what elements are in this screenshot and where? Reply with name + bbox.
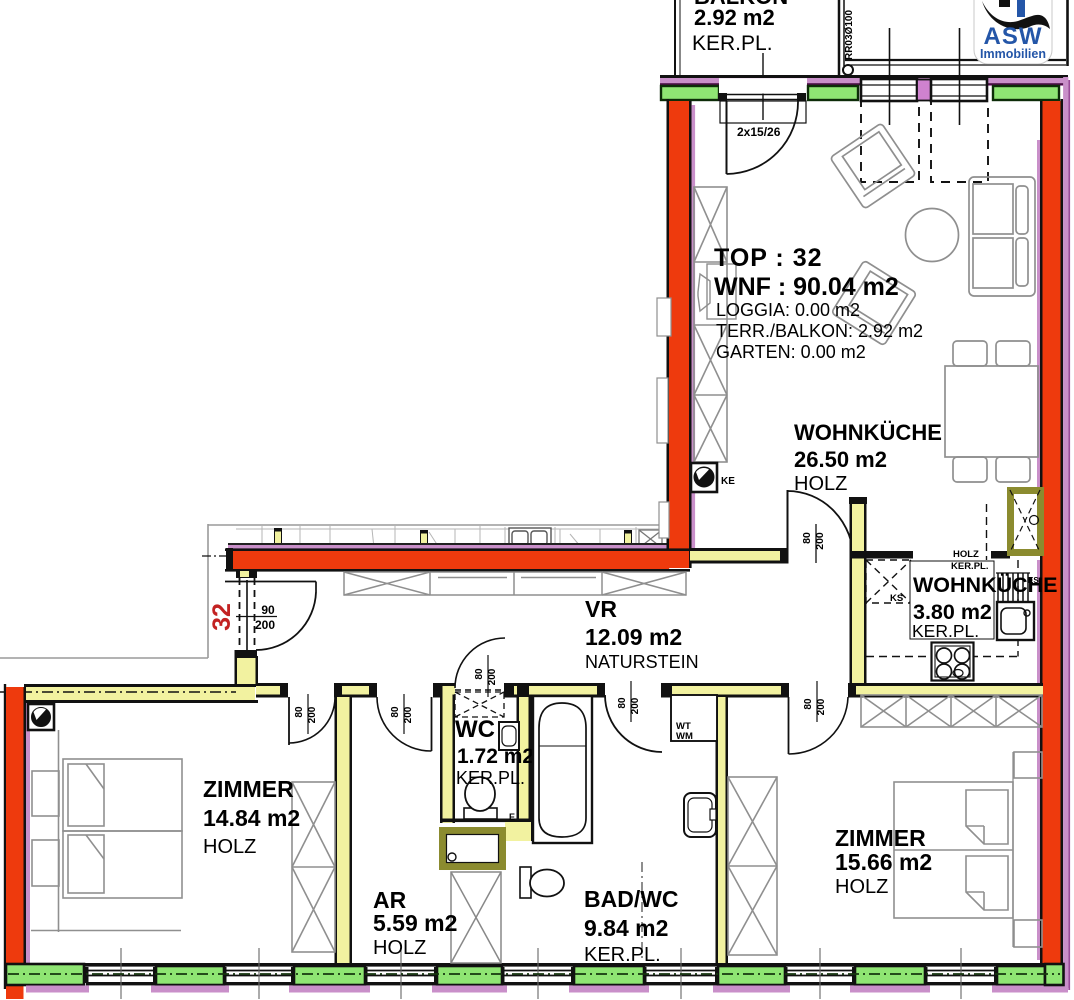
svg-text:15.66 m2: 15.66 m2 bbox=[835, 849, 932, 875]
svg-text:Immobilien: Immobilien bbox=[980, 47, 1046, 61]
svg-text:ES: ES bbox=[1028, 576, 1039, 585]
svg-text:BAD/WC: BAD/WC bbox=[584, 886, 679, 912]
svg-text:80: 80 bbox=[803, 698, 814, 710]
svg-text:WM: WM bbox=[676, 731, 693, 742]
svg-text:200: 200 bbox=[403, 706, 414, 723]
svg-text:200: 200 bbox=[307, 706, 318, 723]
svg-text:HOLZ: HOLZ bbox=[835, 876, 888, 898]
svg-text:200: 200 bbox=[816, 698, 827, 715]
svg-text:LOGGIA: 0.00 m2: LOGGIA: 0.00 m2 bbox=[716, 300, 860, 320]
svg-text:1.72 m2: 1.72 m2 bbox=[457, 745, 534, 768]
svg-text:ASW: ASW bbox=[984, 23, 1043, 50]
svg-text:ZIMMER: ZIMMER bbox=[203, 776, 294, 802]
svg-text:WNF : 90.04 m2: WNF : 90.04 m2 bbox=[714, 273, 899, 301]
svg-text:HOLZ: HOLZ bbox=[794, 473, 847, 495]
svg-text:200: 200 bbox=[814, 532, 826, 550]
svg-text:VR: VR bbox=[585, 596, 617, 622]
svg-text:HOLZ: HOLZ bbox=[203, 836, 256, 858]
svg-text:KER.PL.: KER.PL. bbox=[912, 621, 979, 641]
svg-text:2x15/26: 2x15/26 bbox=[737, 125, 781, 139]
svg-text:ZIMMER: ZIMMER bbox=[835, 825, 926, 851]
svg-text:KS: KS bbox=[890, 593, 903, 604]
svg-text:RR03Ø100: RR03Ø100 bbox=[844, 10, 855, 60]
svg-text:WC: WC bbox=[455, 716, 495, 743]
svg-text:KER.PL.: KER.PL. bbox=[456, 768, 525, 788]
svg-text:TERR./BALKON: 2.92 m2: TERR./BALKON: 2.92 m2 bbox=[716, 321, 923, 341]
svg-text:HOLZ: HOLZ bbox=[373, 937, 426, 959]
svg-text:14.84 m2: 14.84 m2 bbox=[203, 805, 300, 831]
svg-text:80: 80 bbox=[474, 668, 485, 680]
svg-text:32: 32 bbox=[208, 603, 236, 631]
svg-text:80: 80 bbox=[617, 697, 628, 709]
svg-text:KER.PL.: KER.PL. bbox=[692, 32, 773, 55]
svg-text:NATURSTEIN: NATURSTEIN bbox=[585, 652, 699, 672]
svg-text:200: 200 bbox=[630, 697, 641, 714]
svg-text:TOP : 32: TOP : 32 bbox=[714, 244, 823, 272]
svg-text:12.09 m2: 12.09 m2 bbox=[585, 624, 682, 650]
svg-text:KE: KE bbox=[721, 476, 735, 487]
svg-text:90: 90 bbox=[261, 603, 275, 617]
svg-text:200: 200 bbox=[487, 668, 498, 685]
svg-text:2.92 m2: 2.92 m2 bbox=[694, 5, 775, 30]
svg-text:GARTEN: 0.00 m2: GARTEN: 0.00 m2 bbox=[716, 342, 866, 362]
svg-text:KER.PL.: KER.PL. bbox=[951, 561, 988, 572]
svg-text:80: 80 bbox=[390, 706, 401, 718]
svg-text:WOHNKÜCHE: WOHNKÜCHE bbox=[794, 420, 942, 445]
svg-text:26.50 m2: 26.50 m2 bbox=[794, 447, 887, 472]
svg-text:200: 200 bbox=[255, 618, 275, 632]
svg-text:80: 80 bbox=[294, 706, 305, 718]
svg-text:5.59 m2: 5.59 m2 bbox=[373, 910, 457, 936]
svg-text:80: 80 bbox=[801, 532, 813, 544]
svg-text:E: E bbox=[509, 812, 515, 822]
svg-text:9.84 m2: 9.84 m2 bbox=[584, 915, 668, 941]
svg-text:HOLZ: HOLZ bbox=[953, 549, 979, 560]
svg-text:KER.PL.: KER.PL. bbox=[584, 944, 661, 966]
